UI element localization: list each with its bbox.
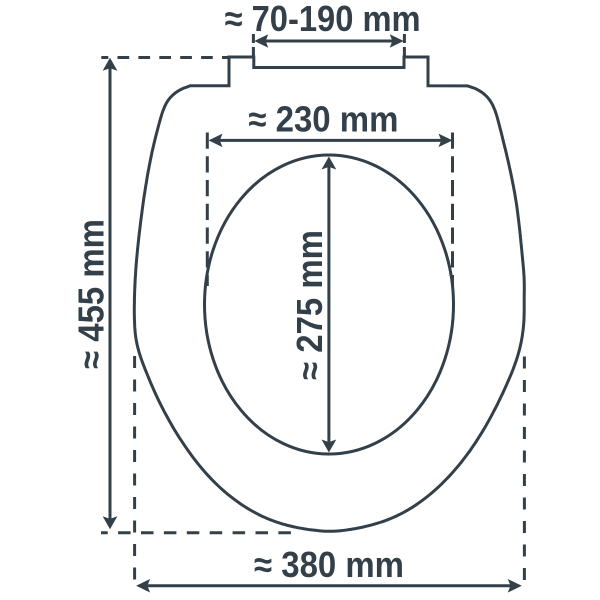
svg-text:≈ 455 mm: ≈ 455 mm — [71, 219, 112, 369]
svg-text:≈ 380 mm: ≈ 380 mm — [254, 544, 404, 585]
svg-text:≈ 70-190 mm: ≈ 70-190 mm — [225, 0, 421, 39]
svg-text:≈ 275 mm: ≈ 275 mm — [289, 230, 330, 380]
svg-text:≈ 230 mm: ≈ 230 mm — [248, 99, 398, 140]
